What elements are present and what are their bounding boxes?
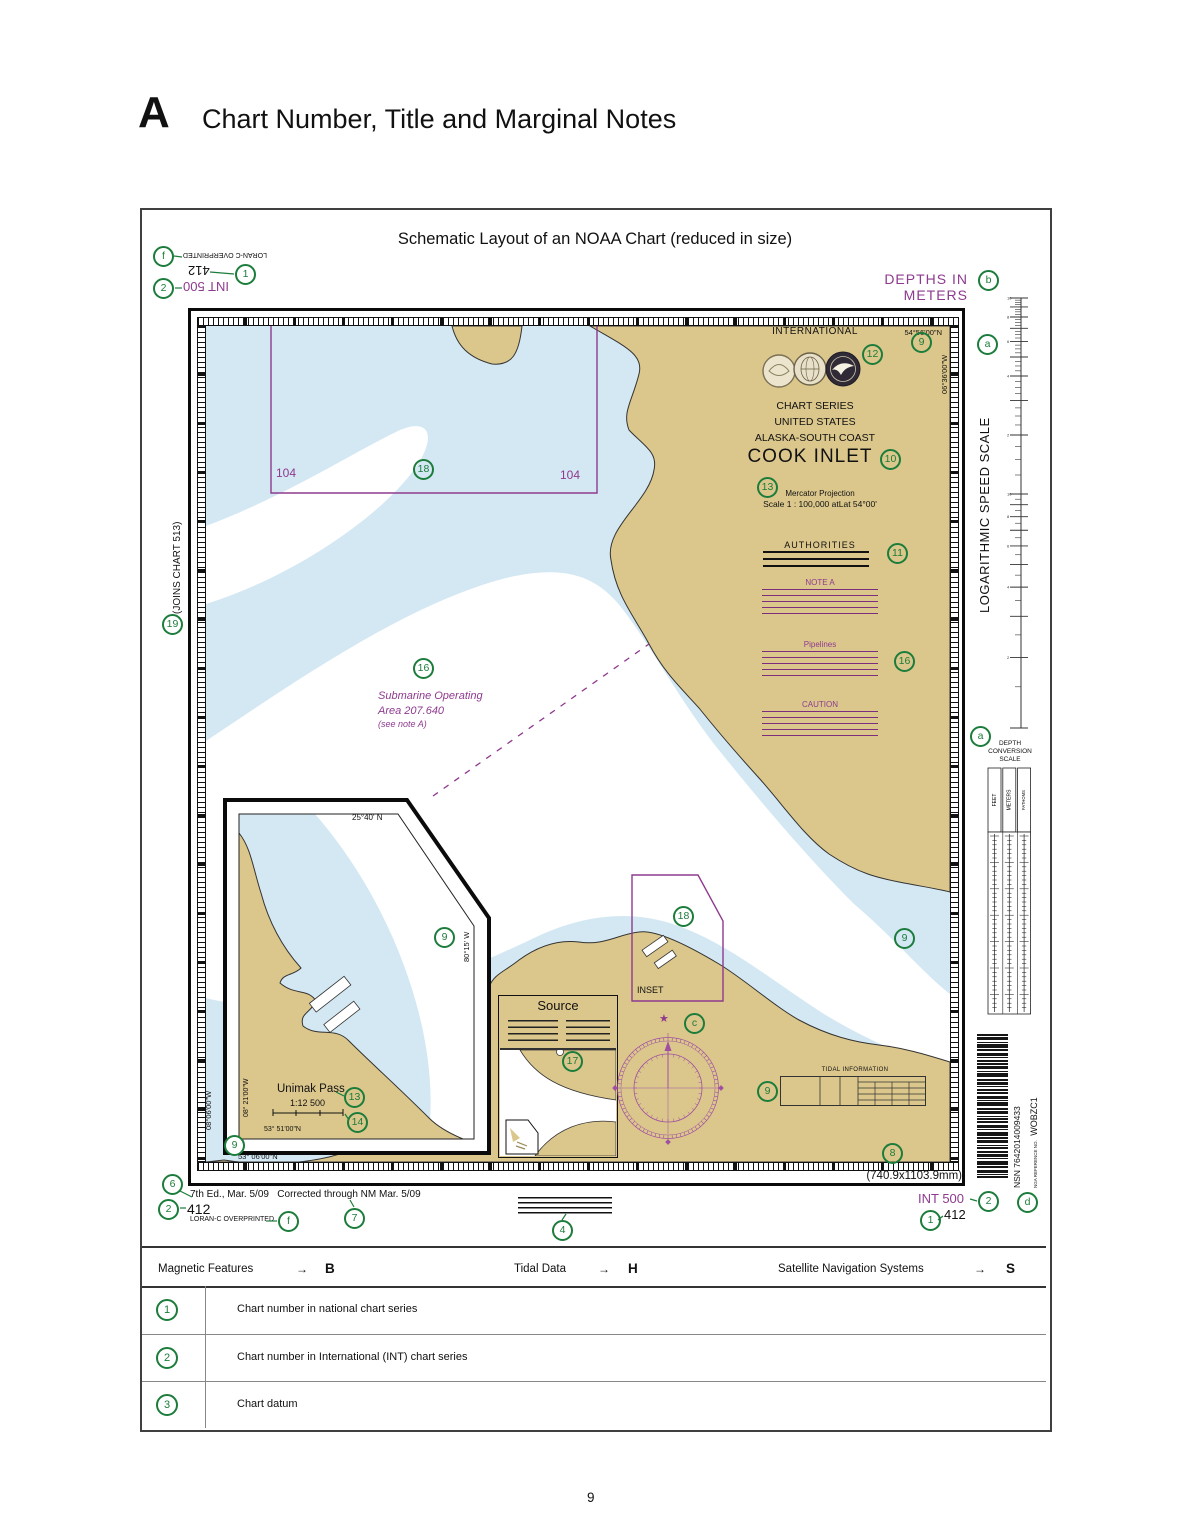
svg-text:FATHOMS: FATHOMS <box>1021 790 1026 810</box>
callout-11: 11 <box>887 543 908 564</box>
note-a-heading: NOTE A <box>770 578 870 587</box>
limit-104-left: 104 <box>276 466 296 480</box>
callout-4: 4 <box>552 1220 573 1241</box>
svg-text:4: 4 <box>1007 585 1010 590</box>
arrow-icon: → <box>296 1262 308 1276</box>
nga-reference: NGA REFERENCE NO. WOBZC1 <box>1024 1097 1042 1188</box>
title-region: ALASKA-SOUTH COAST <box>745 432 885 444</box>
source-lines-right <box>566 1020 610 1045</box>
barcode <box>977 1034 1008 1186</box>
svg-text:2: 2 <box>1007 432 1010 437</box>
callout-13-unimak: 13 <box>344 1087 365 1108</box>
projection-note: Mercator Projection <box>770 489 870 498</box>
chart-number-bl: 412 <box>187 1201 210 1217</box>
caution-lines <box>762 711 878 738</box>
title-series: CHART SERIES <box>760 400 870 412</box>
depth-conversion-scale: FEET METERS FATHOMS <box>984 766 1034 1018</box>
callout-b: b <box>978 270 999 291</box>
joins-chart-note: (JOINS CHART 513) <box>172 522 183 614</box>
item-2-text: Chart number in International (INT) char… <box>237 1351 467 1363</box>
svg-text:6: 6 <box>1007 339 1010 344</box>
arrow-icon: → <box>974 1262 986 1276</box>
callout-c-compass: c <box>684 1013 705 1034</box>
title-nation: UNITED STATES <box>760 416 870 428</box>
inset-lon-right: 80°15' W <box>462 932 471 962</box>
source-lines-left <box>508 1020 558 1045</box>
callout-6: 6 <box>162 1174 183 1195</box>
callout-2-br: 2 <box>978 1191 999 1212</box>
callout-14: 14 <box>347 1112 368 1133</box>
nsn-number: NSN 7642014009433 <box>1012 1106 1022 1188</box>
edition-note: 7th Ed., Mar. 5/09 Corrected through NM … <box>190 1189 421 1200</box>
nga-label: NGA REFERENCE NO. <box>1033 1140 1038 1188</box>
callout-19: 19 <box>162 614 183 635</box>
inset-extent-label: INSET <box>637 985 664 995</box>
svg-text:4: 4 <box>1007 373 1010 378</box>
pipelines-lines <box>762 651 878 678</box>
item-1-text: Chart number in national chart series <box>237 1303 417 1315</box>
callout-a-speed: a <box>977 334 998 355</box>
ref-satnav-label: Satellite Navigation Systems <box>778 1263 924 1275</box>
source-title: Source <box>498 998 618 1013</box>
svg-text:8: 8 <box>1007 514 1010 519</box>
note-a-lines <box>762 589 878 616</box>
page-number: 9 <box>587 1490 595 1505</box>
loran-note-top: LORAN-C OVERPRINTED <box>183 251 267 258</box>
tidal-title: TIDAL INFORMATION <box>800 1067 910 1073</box>
chart-dimensions: (740.9x1103.9mm) <box>830 1170 962 1182</box>
callout-9-tidal: 9 <box>757 1081 778 1102</box>
callout-18-inset: 18 <box>673 906 694 927</box>
svg-text:6: 6 <box>1007 543 1010 548</box>
authorities-lines <box>763 551 869 568</box>
pipelines-heading: Pipelines <box>770 640 870 649</box>
loran-note-bl: LORAN-C OVERPRINTED <box>190 1216 274 1223</box>
callout-8: 8 <box>882 1143 903 1164</box>
svg-text:8: 8 <box>1007 314 1010 319</box>
agency-seals <box>757 344 869 394</box>
row-rule-1 <box>142 1286 1046 1288</box>
row-divider-vertical <box>205 1286 206 1428</box>
ref-tidal-section: H <box>628 1261 638 1276</box>
chart-number-top: 412 <box>188 263 210 278</box>
authorities-heading: AUTHORITIES <box>770 540 870 550</box>
log-speed-scale: 246810246810 <box>1006 296 1032 732</box>
callout-17: 17 <box>562 1051 583 1072</box>
submarine-note-3: (see note A) <box>378 719 427 729</box>
callout-9-inset: 9 <box>434 927 455 948</box>
svg-text:FEET: FEET <box>992 794 998 807</box>
callout-12: 12 <box>862 344 883 365</box>
figure-caption: Schematic Layout of an NOAA Chart (reduc… <box>300 230 890 249</box>
chart-number-br: 412 <box>944 1207 966 1222</box>
inset-lat-top: 25°40' N <box>352 813 383 822</box>
callout-1-br: 1 <box>920 1210 941 1231</box>
depth-scale-title-1: DEPTH <box>984 740 1036 747</box>
inset-name: Unimak Pass <box>277 1083 345 1095</box>
datum-lines <box>518 1197 612 1215</box>
callout-16-sub: 16 <box>413 658 434 679</box>
border-graduation-top <box>197 317 959 326</box>
ref-magnetic-section: B <box>325 1261 335 1276</box>
lon-ne: 06°36'00"W <box>940 355 949 394</box>
callout-d: d <box>1017 1192 1038 1213</box>
log-speed-scale-label: LOGARITHMIC SPEED SCALE <box>977 417 992 613</box>
title-international: INTERNATIONAL <box>760 326 870 337</box>
compass-rose <box>606 1026 730 1150</box>
item-3-number: 3 <box>156 1394 178 1416</box>
row-rule-3 <box>142 1381 1046 1382</box>
callout-2-top: 2 <box>153 278 174 299</box>
callout-f-bl: f <box>278 1211 299 1232</box>
item-2-number: 2 <box>156 1347 178 1369</box>
ref-tidal-label: Tidal Data <box>514 1263 566 1275</box>
arrow-icon: → <box>598 1262 610 1276</box>
callout-7: 7 <box>344 1208 365 1229</box>
depth-scale-title-3: SCALE <box>984 756 1036 763</box>
svg-text:10: 10 <box>1007 492 1012 497</box>
ref-magnetic-label: Magnetic Features <box>158 1263 253 1275</box>
section-letter: A <box>138 88 170 138</box>
page-title: Chart Number, Title and Marginal Notes <box>202 104 676 135</box>
item-1-number: 1 <box>156 1299 178 1321</box>
scale-note: Scale 1 : 100,000 atLat 54°00' <box>755 499 885 509</box>
border-graduation-right <box>950 326 959 1162</box>
lon-sw: 08°06'00"W <box>204 1091 213 1130</box>
callout-16-pipe: 16 <box>894 651 915 672</box>
border-graduation-left <box>197 326 206 1162</box>
inset-lat-bottom: 53° 51'00"N <box>264 1126 301 1133</box>
callout-f-top: f <box>153 246 174 267</box>
caution-heading: CAUTION <box>770 700 870 709</box>
callout-9-east: 9 <box>894 928 915 949</box>
source-diagram <box>500 1050 616 1156</box>
svg-text:2: 2 <box>1007 655 1010 660</box>
svg-text:METERS: METERS <box>1007 789 1013 811</box>
legend-top-rule <box>142 1246 1046 1248</box>
item-3-text: Chart datum <box>237 1398 298 1410</box>
int-number-top: INT 500 <box>183 279 229 294</box>
callout-9-sw: 9 <box>224 1135 245 1156</box>
svg-text:10: 10 <box>1007 296 1012 301</box>
compass-star-icon: ★ <box>659 1012 669 1025</box>
callout-10: 10 <box>880 449 901 470</box>
callout-18-rect: 18 <box>413 459 434 480</box>
chart-title: COOK INLET <box>735 446 885 468</box>
inset-scale: 1:12 500 <box>290 1098 325 1108</box>
nga-number: WOBZC1 <box>1029 1097 1039 1136</box>
callout-9-ne: 9 <box>911 332 932 353</box>
int-number-br: INT 500 <box>918 1191 964 1206</box>
tidal-table <box>780 1076 926 1106</box>
depth-scale-title-2: CONVERSION <box>984 748 1036 755</box>
callout-2-bl: 2 <box>158 1199 179 1220</box>
lat-ne: 54°56'00"N <box>880 328 942 337</box>
row-rule-2 <box>142 1334 1046 1335</box>
limit-104-right: 104 <box>560 468 580 482</box>
submarine-note-2: Area 207.640 <box>378 705 444 717</box>
ref-satnav-section: S <box>1006 1261 1015 1276</box>
callout-1-top: 1 <box>235 264 256 285</box>
depths-note: DEPTHS IN METERS <box>830 271 968 303</box>
submarine-note-1: Submarine Operating <box>378 690 483 702</box>
inset-lon-left: 08° 21'00"W <box>243 1078 250 1117</box>
